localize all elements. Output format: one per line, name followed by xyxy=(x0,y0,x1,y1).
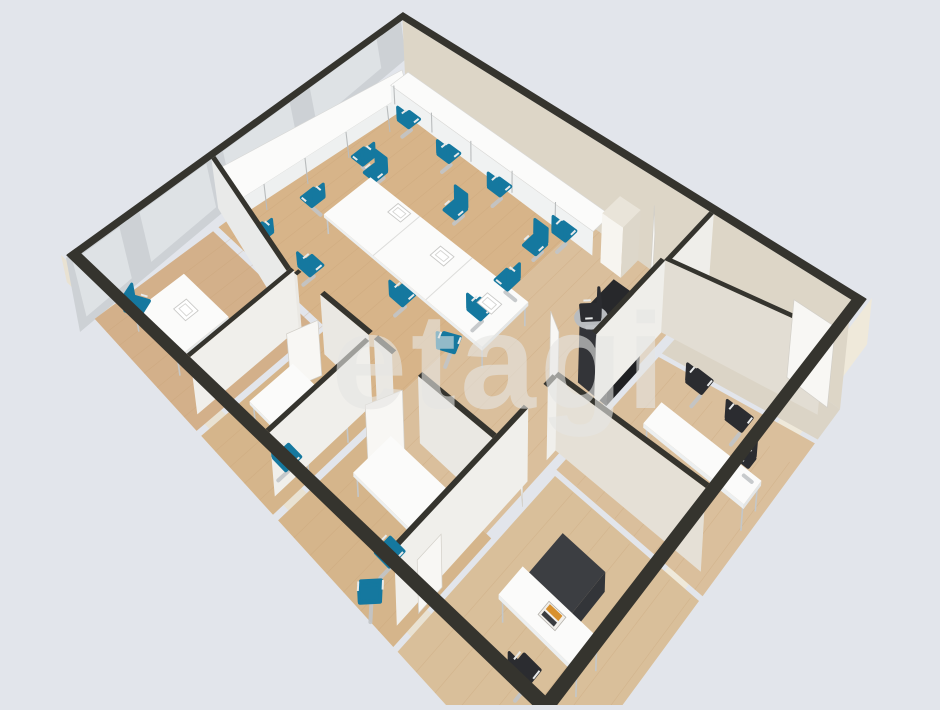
svg-text:etagi: etagi xyxy=(331,285,668,437)
